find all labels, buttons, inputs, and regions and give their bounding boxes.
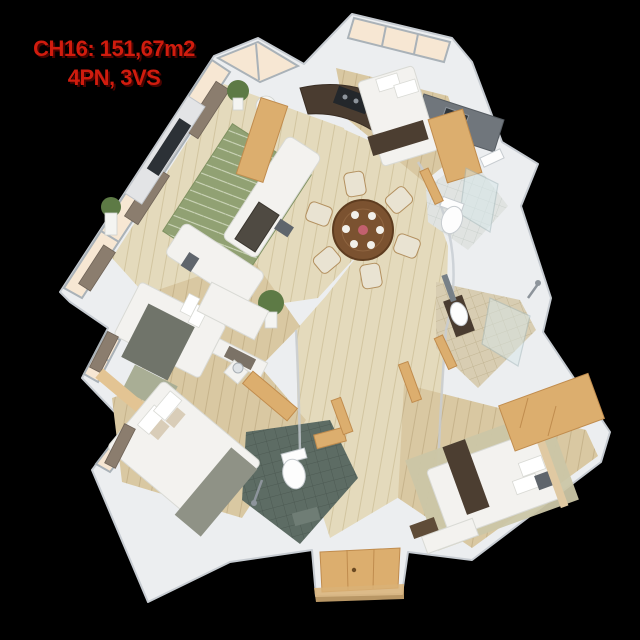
unit-area-text: CH16: 151,67m2	[16, 34, 212, 63]
shower-head	[251, 500, 257, 506]
dining-chair	[359, 262, 383, 289]
unit-info-label: CH16: 151,67m2 4PN, 3VS	[16, 34, 212, 92]
door-handle	[352, 568, 356, 572]
dining-chair	[343, 170, 367, 197]
flower-centerpiece	[358, 225, 368, 235]
shower-head	[535, 280, 541, 286]
floorplan-svg	[0, 0, 640, 640]
floorplan-render: CH16: 151,67m2 4PN, 3VS	[0, 0, 640, 640]
entrance	[314, 548, 404, 602]
rooms-text: 4PN, 3VS	[16, 63, 212, 92]
table-lamp	[233, 363, 243, 373]
